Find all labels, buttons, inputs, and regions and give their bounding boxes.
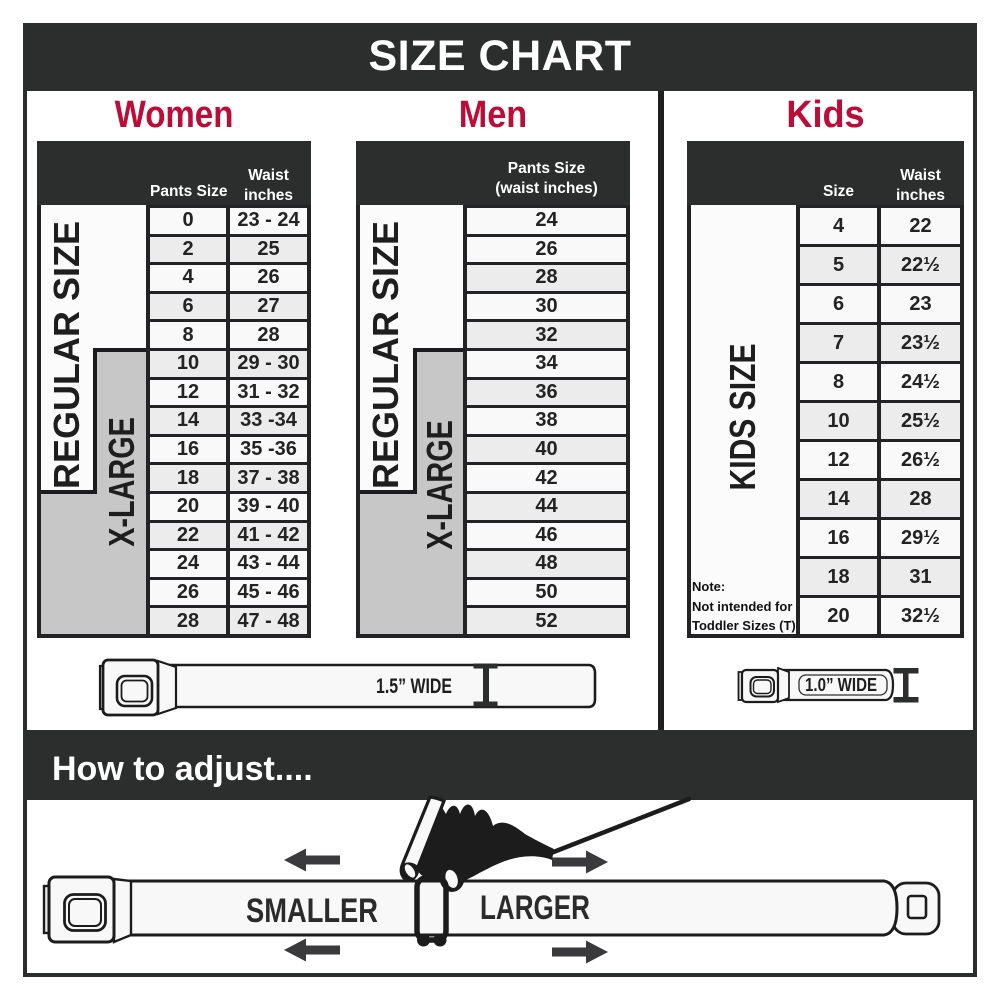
svg-text:1.0” WIDE: 1.0” WIDE (805, 675, 877, 695)
svg-text:1.5” WIDE: 1.5” WIDE (376, 675, 452, 698)
svg-text:SMALLER: SMALLER (246, 892, 378, 930)
svg-text:LARGER: LARGER (480, 889, 590, 927)
